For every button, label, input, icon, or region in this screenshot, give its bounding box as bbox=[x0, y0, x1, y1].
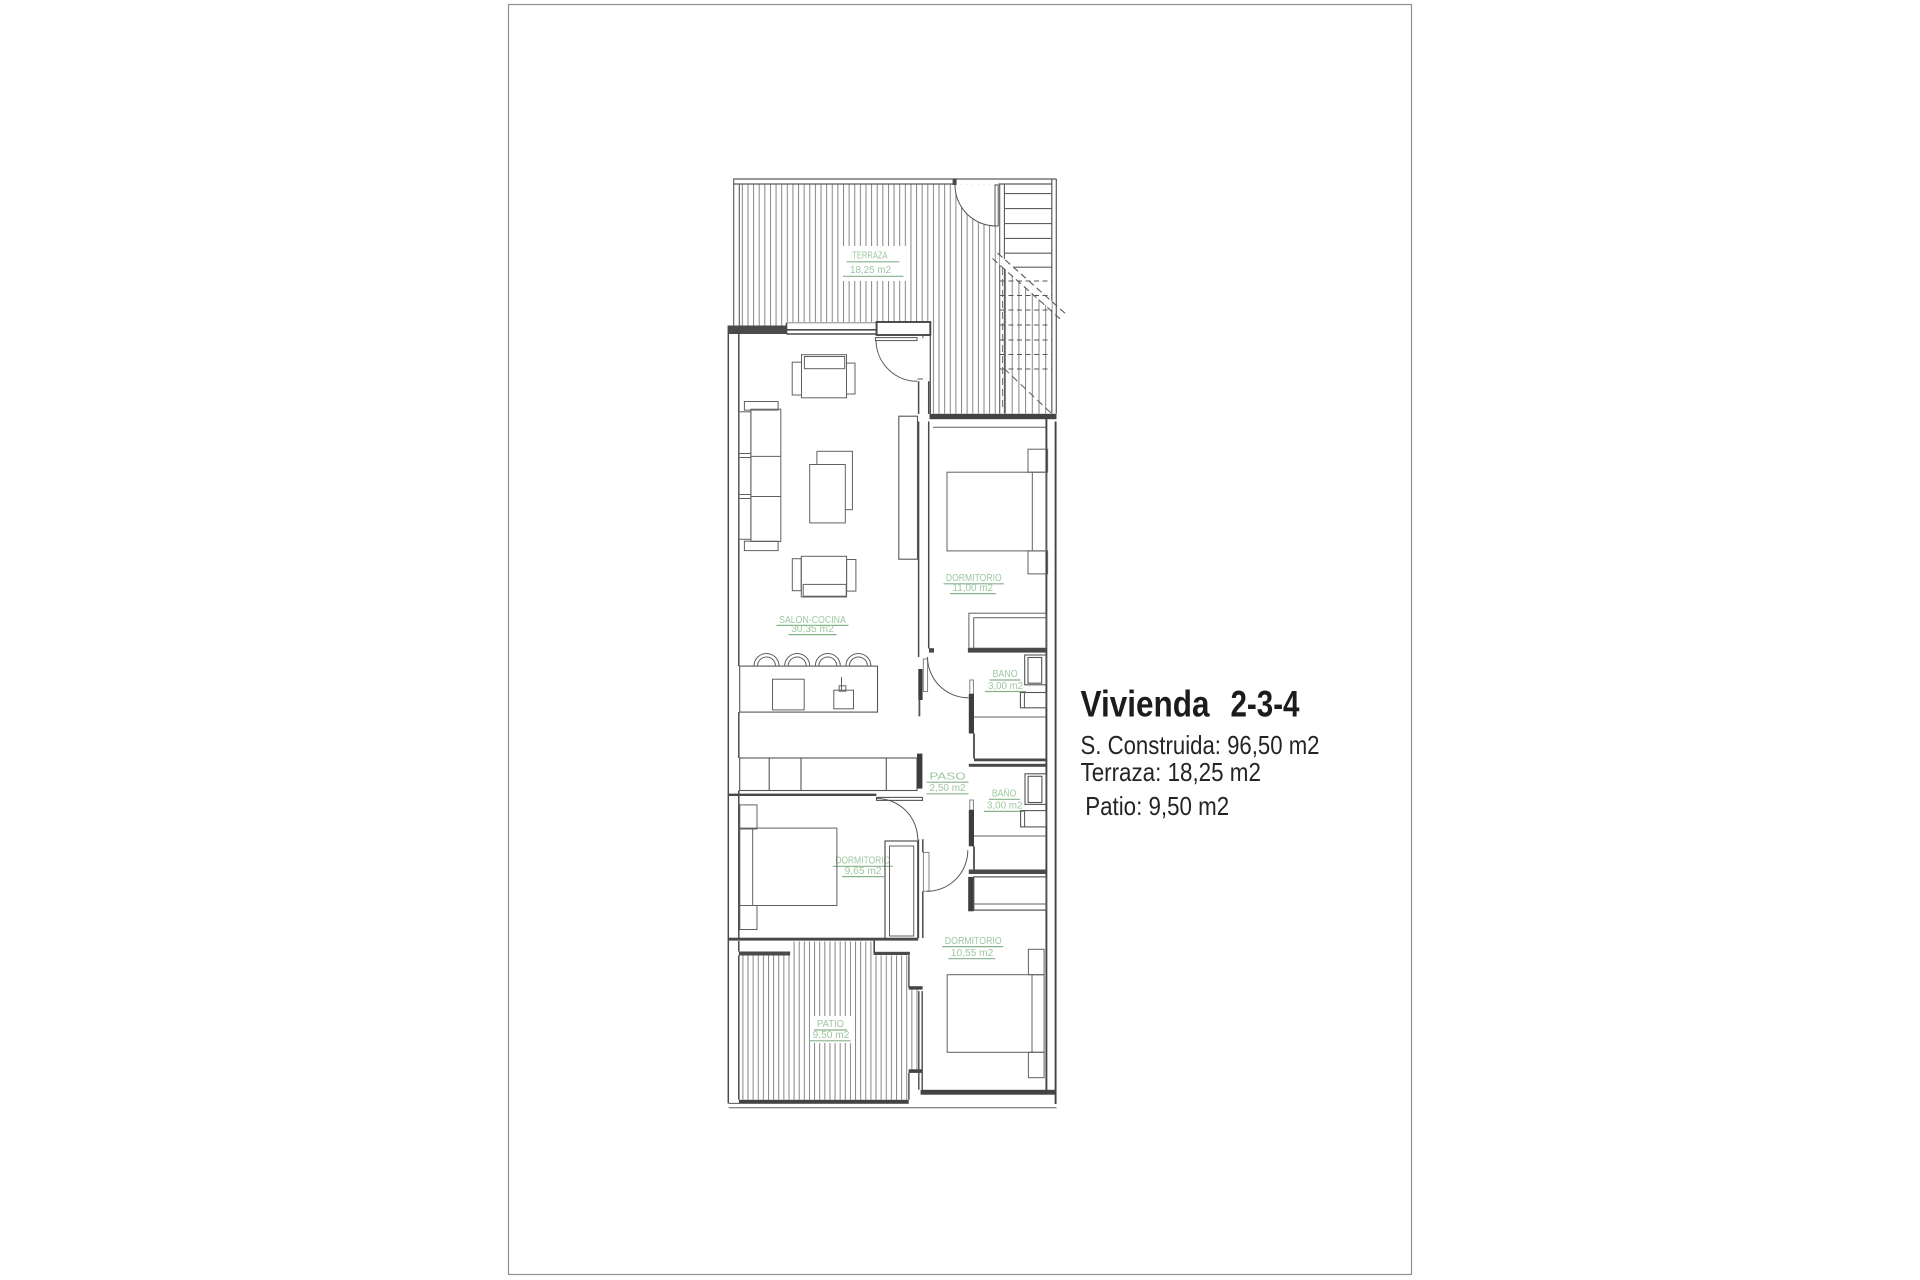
svg-text:BAÑO: BAÑO bbox=[992, 788, 1017, 799]
svg-text:2-3-4: 2-3-4 bbox=[1231, 684, 1300, 725]
svg-text:11,00 m2: 11,00 m2 bbox=[953, 583, 994, 594]
svg-text:TERRAZA: TERRAZA bbox=[852, 251, 888, 262]
svg-text:3,00 m2: 3,00 m2 bbox=[987, 801, 1023, 812]
svg-text:30,35 m2: 30,35 m2 bbox=[791, 624, 834, 635]
svg-text:S. Construida: 96,50 m2: S. Construida: 96,50 m2 bbox=[1081, 730, 1320, 760]
svg-text:DORMITORIO: DORMITORIO bbox=[945, 936, 1002, 947]
svg-text:Patio: 9,50 m2: Patio: 9,50 m2 bbox=[1085, 791, 1229, 821]
svg-text:BAÑO: BAÑO bbox=[993, 669, 1018, 680]
svg-text:9,65 m2: 9,65 m2 bbox=[845, 866, 882, 877]
svg-text:PATIO: PATIO bbox=[817, 1019, 844, 1030]
svg-text:2,50 m2: 2,50 m2 bbox=[930, 783, 966, 794]
svg-text:3,00 m2: 3,00 m2 bbox=[988, 681, 1023, 692]
svg-text:Terraza: 18,25 m2: Terraza: 18,25 m2 bbox=[1081, 757, 1261, 787]
svg-text:18,25 m2: 18,25 m2 bbox=[850, 265, 891, 276]
svg-text:10,55 m2: 10,55 m2 bbox=[951, 948, 993, 959]
svg-text:9,50 m2: 9,50 m2 bbox=[813, 1030, 850, 1041]
svg-text:Vivienda: Vivienda bbox=[1081, 684, 1210, 725]
svg-text:PASO: PASO bbox=[930, 772, 967, 783]
